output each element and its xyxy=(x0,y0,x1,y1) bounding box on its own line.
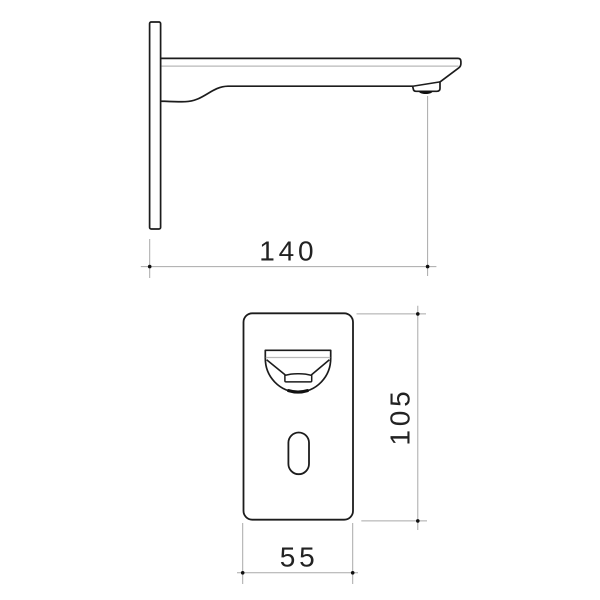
svg-text:105: 105 xyxy=(384,387,415,445)
svg-text:140: 140 xyxy=(259,236,317,267)
svg-text:55: 55 xyxy=(280,542,319,573)
